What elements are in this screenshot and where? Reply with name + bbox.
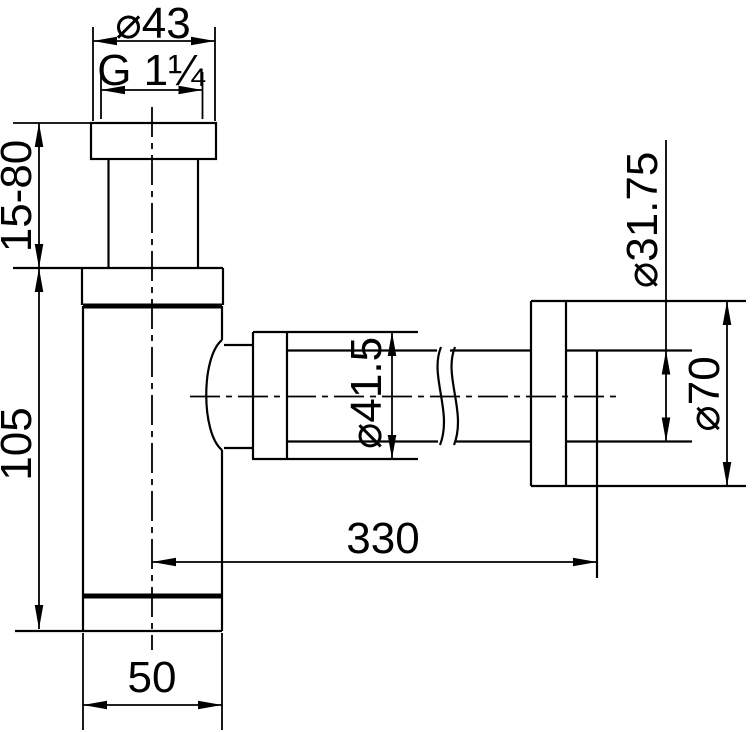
dim-label-pipe-diameter: ⌀31.75 (618, 152, 667, 289)
dim-label-thread: G 1¼ (97, 46, 206, 95)
arrowhead-up (662, 351, 671, 375)
arrowhead-up (723, 301, 732, 325)
arrowhead-right (191, 37, 215, 46)
inlet-cap (91, 123, 216, 159)
dimension-inlet-height: 15-80 (0, 123, 91, 268)
dim-label-cap-diameter: ⌀43 (115, 0, 190, 48)
dim-label-rosette-diameter: ⌀70 (680, 356, 729, 431)
dim-label-body-height: 105 (0, 407, 41, 480)
dim-label-body-width: 50 (128, 653, 177, 702)
dim-label-pipe-length: 330 (346, 514, 419, 563)
arrowhead-left (152, 558, 176, 567)
inlet-assembly (91, 123, 216, 268)
outlet-dome-arc (206, 340, 222, 450)
dimension-body-height: 105 (0, 268, 43, 629)
dimension-nut-diameter: ⌀41.5 (342, 332, 396, 459)
arrowhead-right (198, 701, 222, 710)
bottle-trap-drawing: ⌀43 G 1¼ 15-80 105 50 330 (0, 0, 754, 732)
arrowhead-up (35, 268, 44, 292)
dimension-pipe-diameter: ⌀31.75 (618, 140, 670, 442)
trap-body (13, 268, 223, 631)
dim-label-nut-diameter: ⌀41.5 (342, 337, 391, 449)
dim-label-inlet-height: 15-80 (0, 140, 41, 253)
arrowhead-right (573, 558, 597, 567)
technical-drawing-page: ⌀43 G 1¼ 15-80 105 50 330 (0, 0, 754, 732)
arrowhead-left (83, 701, 107, 710)
arrowhead-down (35, 605, 44, 629)
wall-rosette (531, 301, 746, 578)
arrowhead-down (723, 462, 732, 486)
dimension-pipe-length: 330 (152, 514, 597, 566)
arrowhead-down (662, 418, 671, 442)
arrowhead-left (93, 37, 117, 46)
dimension-rosette-diameter: ⌀70 (680, 301, 731, 486)
